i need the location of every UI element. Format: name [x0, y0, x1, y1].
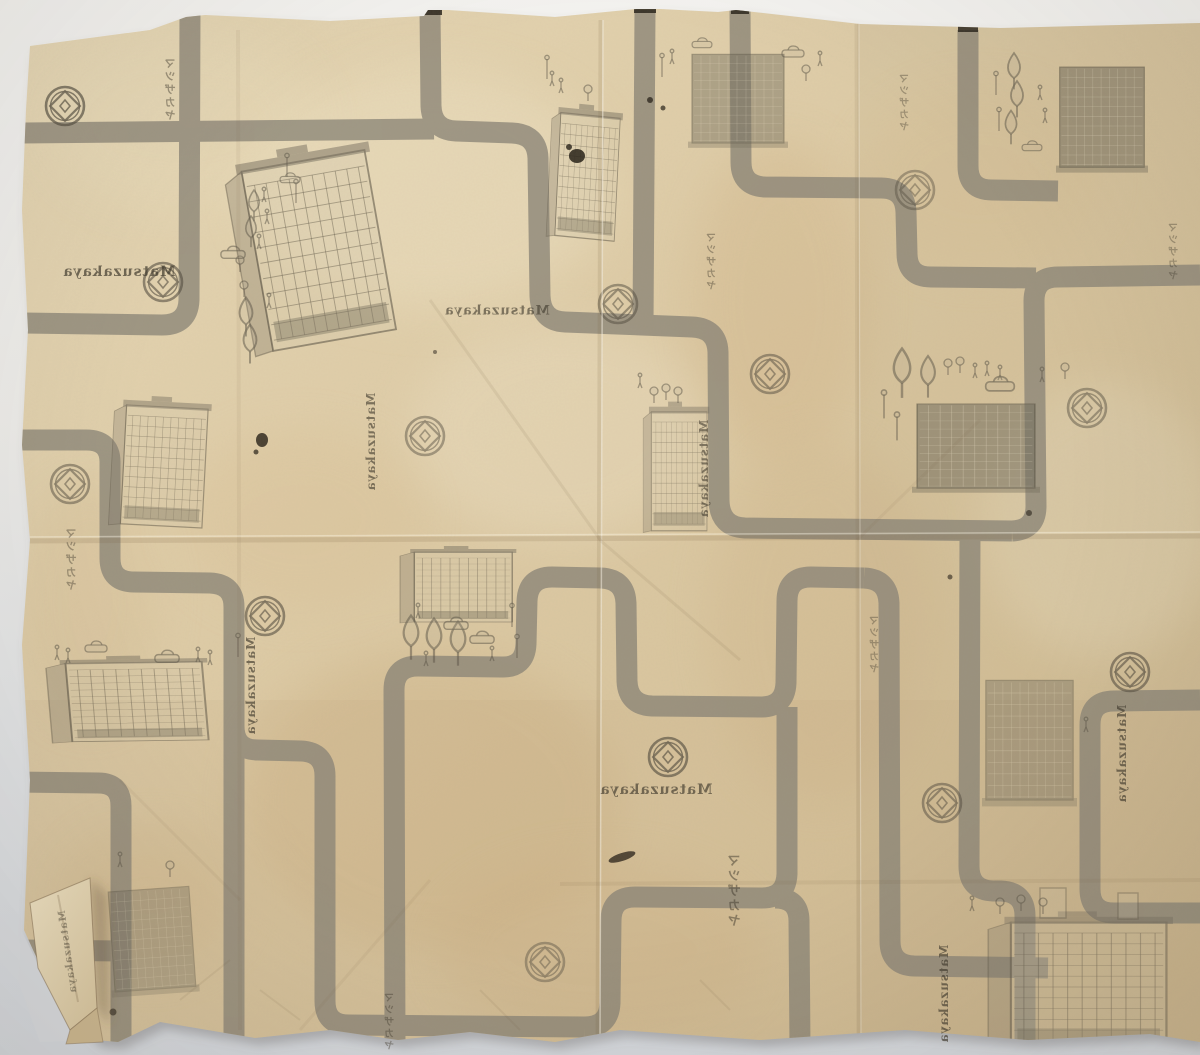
paper-surface — [0, 0, 1200, 1055]
paper-grain — [0, 0, 1200, 1055]
photograph — [0, 0, 1200, 1055]
photo-backdrop: Matsuzakaya Matsuzakaya Matsuzakaya Mats… — [0, 0, 1200, 1055]
